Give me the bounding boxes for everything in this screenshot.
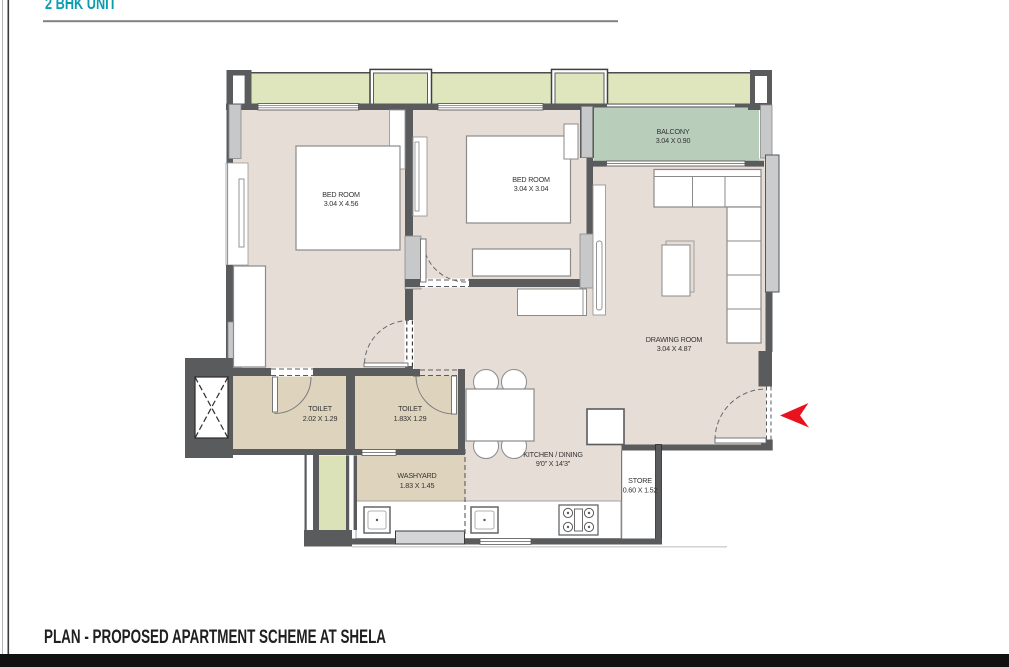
svg-text:1.83X 1.29: 1.83X 1.29 xyxy=(394,414,427,423)
svg-text:0.60 X 1.52: 0.60 X 1.52 xyxy=(623,486,658,495)
svg-text:WASHYARD: WASHYARD xyxy=(397,471,436,480)
svg-text:3.04 X 3.04: 3.04 X 3.04 xyxy=(514,184,549,193)
svg-text:3.04 X 0.90: 3.04 X 0.90 xyxy=(656,136,691,145)
svg-text:PLAN - PROPOSED APARTMENT SCHE: PLAN - PROPOSED APARTMENT SCHEME AT SHEL… xyxy=(44,626,386,648)
svg-text:BED ROOM: BED ROOM xyxy=(512,175,550,184)
svg-text:3.04 X 4.87: 3.04 X 4.87 xyxy=(657,344,692,353)
svg-text:KITCHEN / DINING: KITCHEN / DINING xyxy=(523,450,583,459)
svg-text:STORE: STORE xyxy=(628,476,652,485)
svg-text:3.04 X 4.56: 3.04 X 4.56 xyxy=(324,199,359,208)
svg-text:DRAWING ROOM: DRAWING ROOM xyxy=(646,335,703,344)
svg-text:TOILET: TOILET xyxy=(398,404,423,413)
svg-text:BED ROOM: BED ROOM xyxy=(322,190,360,199)
svg-text:2.02 X 1.29: 2.02 X 1.29 xyxy=(303,414,338,423)
svg-text:BALCONY: BALCONY xyxy=(657,127,690,136)
svg-text:TOILET: TOILET xyxy=(308,404,333,413)
svg-text:2 BHK UNIT: 2 BHK UNIT xyxy=(45,0,117,13)
svg-text:9'0" X 14'3": 9'0" X 14'3" xyxy=(536,459,571,468)
svg-text:1.83 X 1.45: 1.83 X 1.45 xyxy=(400,481,435,490)
